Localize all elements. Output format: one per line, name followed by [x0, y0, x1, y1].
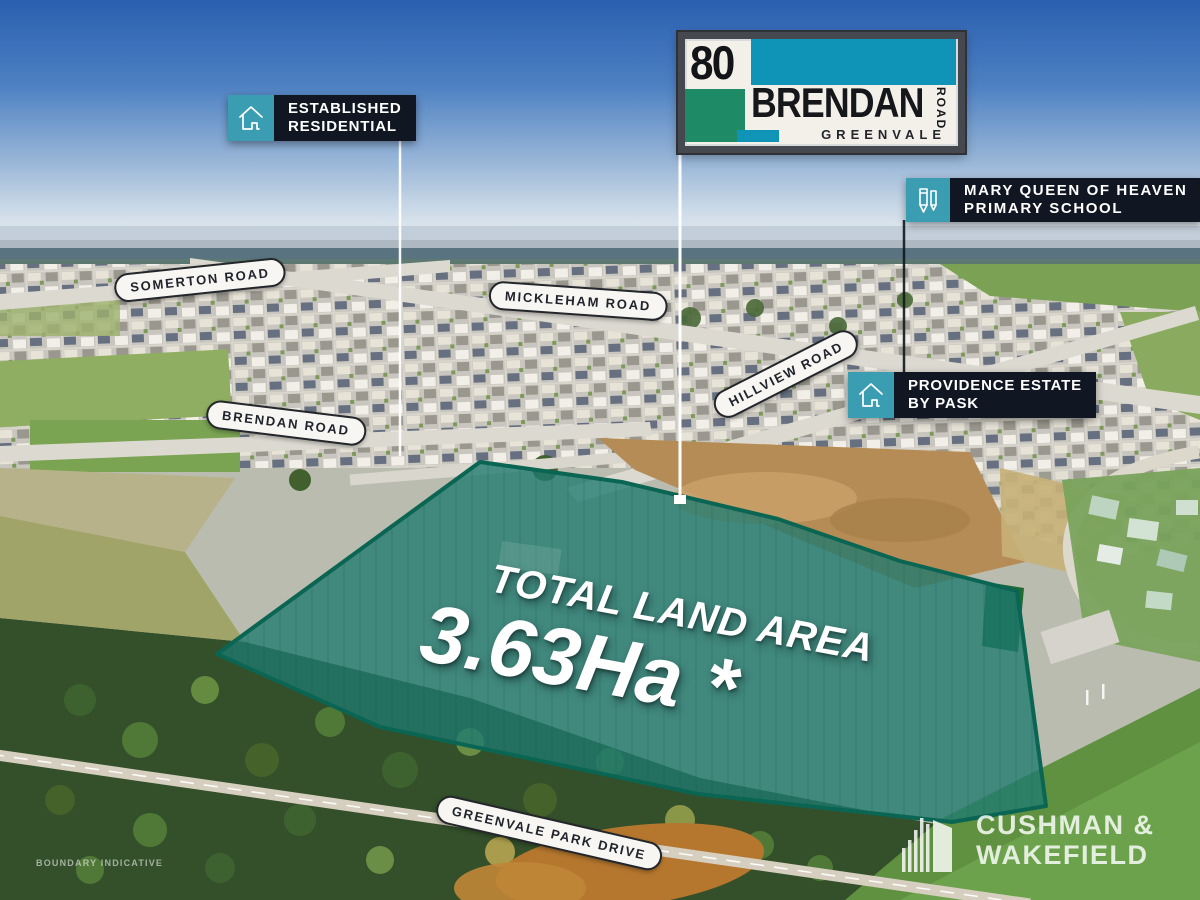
sign-suburb: GREENVALE — [821, 127, 946, 142]
logo-line1: CUSHMAN & — [976, 810, 1155, 840]
aerial-terrain — [0, 0, 1200, 900]
sign-road-word: ROAD — [934, 87, 948, 130]
aerial-photo: 80 BRENDAN ROAD GREENVALE ESTABLISHED RE… — [0, 0, 1200, 900]
property-sign: 80 BRENDAN ROAD GREENVALE — [678, 32, 965, 153]
logo-line2: WAKEFIELD — [976, 840, 1155, 870]
house-icon — [848, 372, 894, 418]
sign-street-number: 80 — [690, 35, 733, 90]
callout-providence-line1: PROVIDENCE ESTATE — [908, 377, 1082, 395]
leader-sign-endpoint — [674, 495, 686, 504]
callout-primary-school: MARY QUEEN OF HEAVEN PRIMARY SCHOOL — [906, 178, 1200, 222]
callout-established-line2: RESIDENTIAL — [288, 118, 402, 136]
callout-school-line2: PRIMARY SCHOOL — [964, 200, 1187, 218]
boundary-disclaimer: BOUNDARY INDICATIVE — [36, 858, 163, 868]
buildings-icon — [900, 808, 962, 872]
callout-providence-estate: PROVIDENCE ESTATE BY PASK — [848, 372, 1096, 418]
callout-established-line1: ESTABLISHED — [288, 100, 402, 118]
cushman-wakefield-logo: CUSHMAN & WAKEFIELD — [900, 808, 1155, 872]
sign-street-name: BRENDAN — [751, 79, 924, 127]
pencil-icon — [906, 178, 950, 222]
sign-teal-small-block — [737, 130, 779, 142]
callout-providence-line2: BY PASK — [908, 395, 1082, 413]
callout-established-residential: ESTABLISHED RESIDENTIAL — [228, 95, 416, 141]
house-icon — [228, 95, 274, 141]
sign-green-block — [685, 89, 745, 142]
callout-school-line1: MARY QUEEN OF HEAVEN — [964, 182, 1187, 200]
